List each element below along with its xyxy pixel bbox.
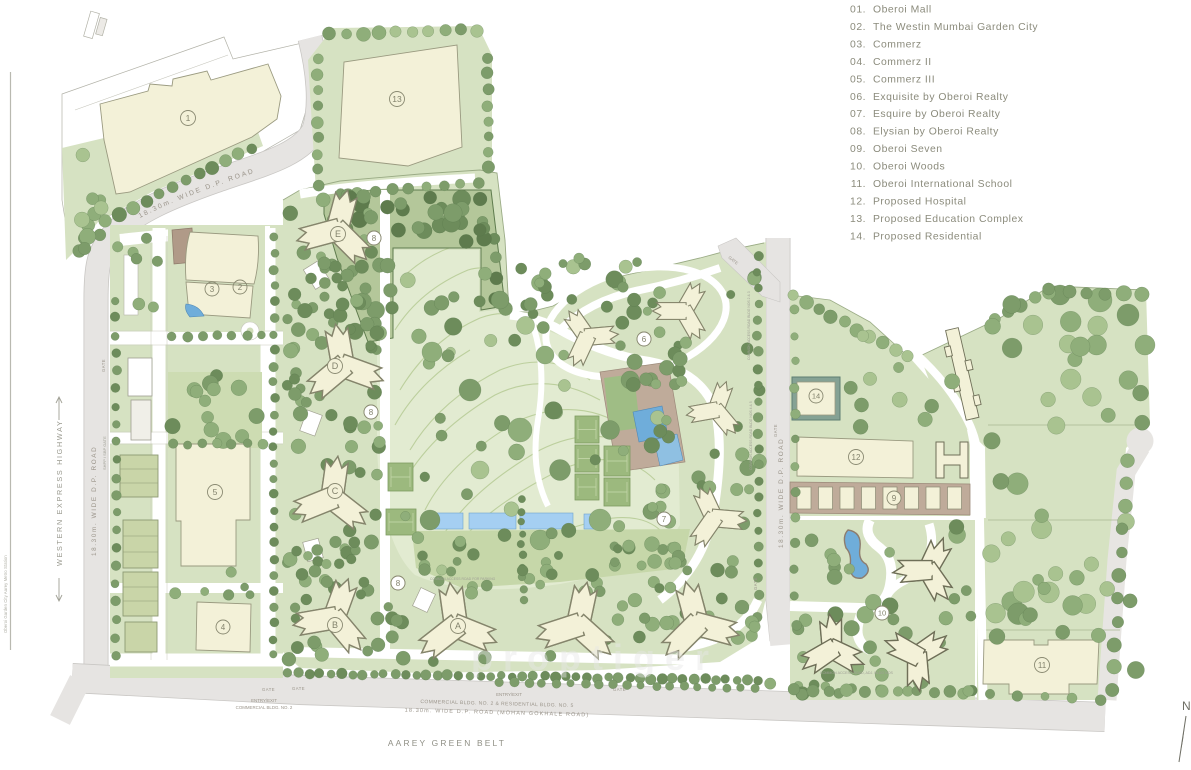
- svg-text:6: 6: [642, 335, 647, 344]
- svg-text:11: 11: [1038, 661, 1047, 670]
- svg-text:01.: 01.: [850, 5, 866, 16]
- svg-text:3: 3: [210, 285, 215, 294]
- svg-text:SHPP / SBP GATE: SHPP / SBP GATE: [102, 436, 107, 470]
- svg-text:Proposed Hospital: Proposed Hospital: [873, 196, 966, 207]
- svg-text:Oberoi Garden City Aarey Metro: Oberoi Garden City Aarey Metro Station: [3, 555, 8, 633]
- svg-text:08.: 08.: [850, 127, 866, 138]
- svg-text:C: C: [332, 486, 339, 496]
- svg-text:7: 7: [662, 515, 667, 524]
- svg-text:The Westin Mumbai Garden City: The Westin Mumbai Garden City: [873, 22, 1038, 33]
- svg-text:GATE: GATE: [613, 687, 626, 692]
- svg-text:10: 10: [878, 609, 886, 618]
- svg-text:COMMON ACCESS ROAD BLDG NOS 4: COMMON ACCESS ROAD BLDG NOS 4 & 5: [749, 401, 753, 470]
- svg-text:07.: 07.: [850, 109, 866, 120]
- svg-text:GATE: GATE: [292, 686, 305, 691]
- svg-text:A: A: [455, 621, 461, 631]
- svg-text:10.: 10.: [850, 162, 866, 173]
- svg-text:02.: 02.: [850, 22, 866, 33]
- svg-text:09.: 09.: [850, 144, 866, 155]
- svg-text:GATE: GATE: [773, 424, 778, 437]
- svg-text:14.: 14.: [850, 231, 866, 242]
- svg-text:06.: 06.: [850, 92, 866, 103]
- svg-text:11.: 11.: [851, 179, 866, 190]
- svg-text:04.: 04.: [850, 57, 866, 68]
- svg-text:Commerz III: Commerz III: [873, 74, 935, 85]
- svg-text:1: 1: [186, 113, 191, 123]
- svg-text:Proposed Residential: Proposed Residential: [873, 231, 982, 242]
- svg-text:12.: 12.: [850, 196, 866, 207]
- svg-text:4: 4: [221, 623, 226, 632]
- svg-text:GATE: GATE: [753, 577, 758, 590]
- svg-text:ENTRY/EXIT: ENTRY/EXIT: [496, 692, 522, 697]
- svg-text:Oberoi Mall: Oberoi Mall: [873, 5, 932, 16]
- svg-text:05.: 05.: [850, 74, 866, 85]
- svg-text:Oberoi Seven: Oberoi Seven: [873, 144, 943, 155]
- svg-text:Exquisite by Oberoi Realty: Exquisite by Oberoi Realty: [873, 92, 1009, 103]
- svg-text:ENTRY/EXIT: ENTRY/EXIT: [251, 698, 277, 703]
- svg-text:5: 5: [213, 487, 218, 497]
- svg-text:GATE: GATE: [262, 687, 275, 692]
- svg-text:COMMERCIAL BLDG. NO. 2: COMMERCIAL BLDG. NO. 2: [236, 705, 293, 710]
- svg-text:D: D: [332, 361, 339, 371]
- svg-text:Oberoi Woods: Oberoi Woods: [873, 162, 945, 173]
- svg-text:13: 13: [392, 94, 402, 104]
- svg-text:8: 8: [369, 408, 374, 417]
- svg-text:Elysian by Oberoi Realty: Elysian by Oberoi Realty: [873, 127, 999, 138]
- svg-text:8: 8: [396, 579, 401, 588]
- svg-text:18.30m. WIDE D.P. ROAD: 18.30m. WIDE D.P. ROAD: [91, 446, 98, 556]
- svg-text:COMMON ACCESS ROAD BLDG NOS 2: COMMON ACCESS ROAD BLDG NOS 2 & 3: [747, 291, 751, 360]
- svg-text:12: 12: [852, 453, 861, 462]
- svg-text:18.30m. WIDE D.P. ROAD: 18.30m. WIDE D.P. ROAD: [778, 438, 785, 548]
- svg-text:2: 2: [238, 283, 243, 292]
- svg-text:14: 14: [812, 392, 820, 401]
- svg-text:E: E: [335, 229, 341, 239]
- svg-text:8: 8: [372, 234, 377, 243]
- svg-text:B: B: [332, 620, 338, 630]
- svg-text:9: 9: [892, 494, 897, 503]
- svg-text:Proposed Education Complex: Proposed Education Complex: [873, 214, 1024, 225]
- svg-text:COMMON ACCESS ROAD, ADJ. BLDG: COMMON ACCESS ROAD, ADJ. BLDG NOS: [820, 671, 893, 675]
- svg-text:Oberoi International School: Oberoi International School: [873, 179, 1012, 190]
- svg-text:Commerz: Commerz: [873, 39, 922, 50]
- svg-text:03.: 03.: [850, 39, 866, 50]
- svg-text:Commerz II: Commerz II: [873, 57, 932, 68]
- svg-text:13.: 13.: [850, 214, 866, 225]
- svg-text:Esquire by Oberoi Realty: Esquire by Oberoi Realty: [873, 109, 1001, 120]
- svg-text:WESTERN EXPRESS HIGHWAY: WESTERN EXPRESS HIGHWAY: [55, 419, 64, 566]
- svg-text:GATE: GATE: [101, 359, 106, 372]
- svg-text:AAREY GREEN BELT: AAREY GREEN BELT: [388, 738, 506, 748]
- svg-text:N: N: [1182, 699, 1191, 713]
- svg-text:COMMON ACCESS ROAD FOR PARKING: COMMON ACCESS ROAD FOR PARKING: [430, 577, 496, 581]
- svg-text:proptiger: proptiger: [471, 637, 719, 678]
